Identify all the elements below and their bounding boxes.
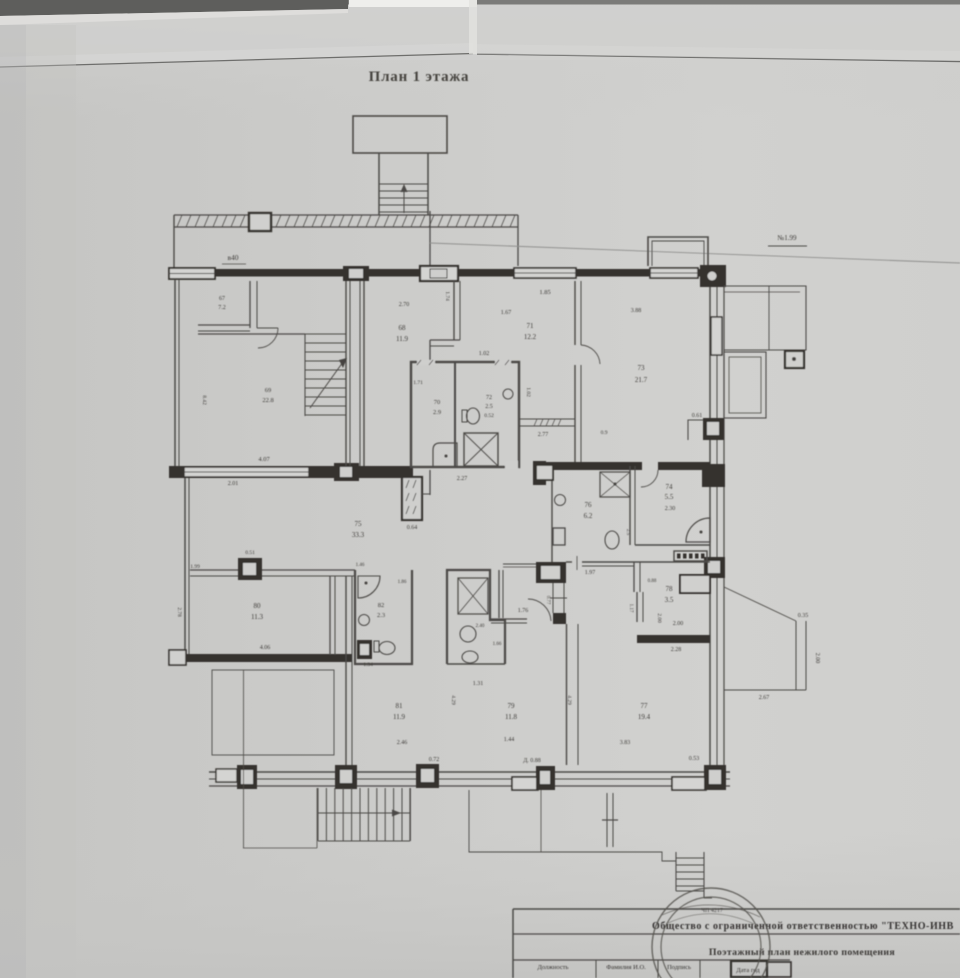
- svg-text:0.72: 0.72: [429, 757, 440, 763]
- svg-text:Подпись: Подпись: [667, 964, 691, 971]
- svg-text:77: 77: [641, 702, 649, 710]
- svg-text:1.46: 1.46: [356, 563, 365, 568]
- svg-text:1.02: 1.02: [525, 387, 531, 397]
- svg-text:2.3: 2.3: [377, 612, 385, 619]
- svg-text:0.88: 0.88: [648, 579, 657, 584]
- svg-text:1.74: 1.74: [444, 291, 450, 301]
- svg-text:1.02: 1.02: [479, 351, 490, 357]
- svg-text:7.2: 7.2: [218, 305, 226, 311]
- svg-text:Поэтажный план нежилого помеще: Поэтажный план нежилого помещения: [709, 947, 896, 958]
- svg-text:План 1 этажа: План 1 этажа: [369, 69, 470, 85]
- svg-text:1.44: 1.44: [504, 737, 515, 743]
- svg-text:2.40: 2.40: [476, 624, 485, 629]
- svg-text:75: 75: [355, 520, 363, 528]
- svg-text:6.2: 6.2: [584, 512, 593, 520]
- svg-text:69: 69: [265, 387, 272, 394]
- svg-text:0.77: 0.77: [545, 596, 550, 605]
- svg-text:74: 74: [666, 483, 674, 491]
- svg-text:72: 72: [486, 395, 492, 401]
- svg-text:2.01: 2.01: [228, 481, 239, 487]
- svg-text:0.61: 0.61: [692, 413, 703, 419]
- svg-text:Должность: Должность: [538, 964, 569, 971]
- svg-text:1.67: 1.67: [501, 310, 512, 316]
- svg-text:2.27: 2.27: [457, 476, 468, 482]
- svg-text:33.3: 33.3: [352, 531, 365, 539]
- svg-text:5.5: 5.5: [665, 493, 674, 501]
- svg-text:4.07: 4.07: [258, 456, 270, 463]
- svg-text:0.52: 0.52: [484, 413, 494, 419]
- svg-text:73: 73: [638, 364, 646, 372]
- svg-text:2.67: 2.67: [759, 695, 770, 701]
- svg-text:82: 82: [378, 602, 385, 609]
- svg-text:22.8: 22.8: [262, 397, 273, 404]
- svg-text:21.7: 21.7: [635, 376, 648, 384]
- svg-text:0.51: 0.51: [245, 550, 255, 556]
- svg-text:1.71: 1.71: [413, 380, 423, 386]
- svg-text:1.99: 1.99: [190, 564, 200, 570]
- svg-text:1.76: 1.76: [518, 608, 529, 614]
- svg-text:11.3: 11.3: [251, 613, 263, 621]
- svg-text:3.83: 3.83: [620, 740, 631, 746]
- svg-text:19.4: 19.4: [638, 713, 651, 721]
- svg-text:81: 81: [396, 702, 404, 710]
- svg-text:ЧП 4217: ЧП 4217: [701, 908, 723, 914]
- svg-text:Д. 0.88: Д. 0.88: [523, 758, 541, 764]
- svg-text:Фамилия И.О.: Фамилия И.О.: [606, 964, 646, 971]
- svg-text:2.28: 2.28: [671, 647, 682, 653]
- svg-text:2.46: 2.46: [397, 740, 408, 746]
- svg-text:2.30: 2.30: [665, 506, 676, 512]
- svg-text:2.78: 2.78: [176, 607, 182, 617]
- svg-text:70: 70: [434, 399, 441, 406]
- svg-text:2.00: 2.00: [656, 613, 662, 623]
- svg-text:2.5: 2.5: [625, 529, 630, 536]
- svg-text:2.70: 2.70: [399, 302, 410, 308]
- svg-text:2.5: 2.5: [485, 404, 493, 410]
- svg-text:3.88: 3.88: [631, 308, 642, 314]
- svg-text:76: 76: [585, 501, 593, 509]
- svg-text:1.86: 1.86: [398, 580, 407, 585]
- svg-text:1.34: 1.34: [363, 662, 373, 668]
- svg-text:1.17: 1.17: [628, 604, 633, 613]
- svg-text:4.29: 4.29: [450, 695, 456, 705]
- svg-text:1.97: 1.97: [585, 570, 596, 576]
- svg-text:11.9: 11.9: [396, 335, 408, 343]
- svg-text:№1.99: №1.99: [778, 234, 797, 242]
- svg-text:12.2: 12.2: [524, 333, 537, 341]
- svg-text:0.64: 0.64: [407, 525, 418, 531]
- svg-text:11.9: 11.9: [393, 713, 405, 721]
- svg-text:2.00: 2.00: [673, 621, 684, 627]
- svg-text:78: 78: [666, 585, 674, 593]
- svg-text:2.77: 2.77: [538, 432, 549, 438]
- svg-text:80: 80: [254, 602, 262, 610]
- svg-text:1.66: 1.66: [493, 642, 502, 647]
- svg-text:11.8: 11.8: [505, 713, 517, 721]
- svg-text:71: 71: [527, 322, 535, 330]
- svg-text:0.53: 0.53: [689, 756, 700, 762]
- svg-text:Общество с ограниченной ответс: Общество с ограниченной ответственностью…: [652, 921, 954, 932]
- svg-text:2.00: 2.00: [814, 653, 820, 664]
- svg-text:0.35: 0.35: [798, 613, 809, 619]
- svg-text:в40: в40: [227, 253, 238, 262]
- svg-text:0.9: 0.9: [601, 430, 608, 436]
- svg-text:67: 67: [219, 296, 225, 302]
- svg-text:68: 68: [399, 324, 407, 332]
- svg-text:1.85: 1.85: [539, 289, 550, 296]
- svg-text:8.42: 8.42: [201, 395, 207, 405]
- svg-text:79: 79: [508, 702, 516, 710]
- svg-text:4.06: 4.06: [260, 645, 271, 651]
- svg-text:1.31: 1.31: [473, 681, 484, 687]
- svg-text:2.9: 2.9: [433, 409, 441, 416]
- svg-text:3.5: 3.5: [665, 596, 674, 604]
